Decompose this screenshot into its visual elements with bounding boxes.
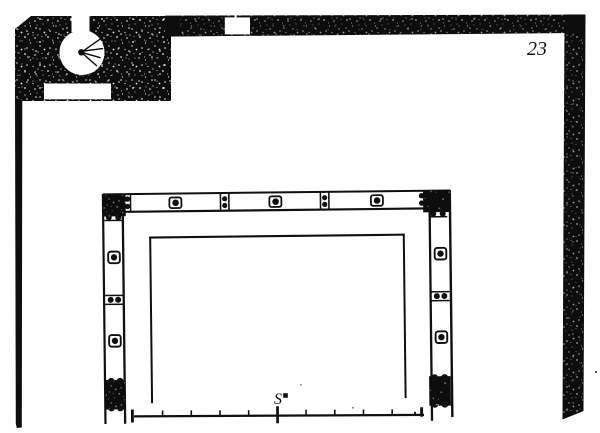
svg-text:S: S <box>274 391 282 408</box>
svg-text:23: 23 <box>527 38 547 60</box>
